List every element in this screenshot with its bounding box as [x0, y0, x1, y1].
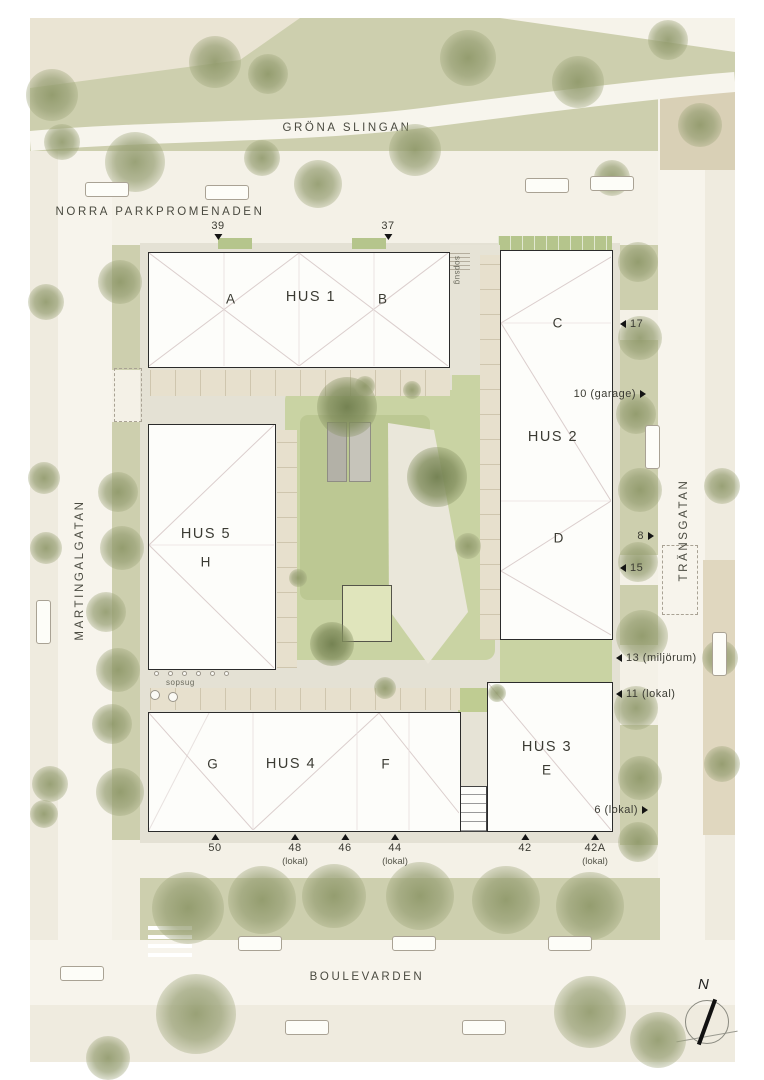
sopsug-inlet [210, 671, 215, 676]
terrace-strip-hus4 [150, 688, 460, 710]
entrance-label: 15 [630, 562, 643, 574]
street-label-norra-parkpromenaden: NORRA PARKPROMENADEN [56, 206, 265, 218]
tree [228, 866, 296, 934]
tree [648, 20, 688, 60]
entrance-arrow-icon [211, 834, 219, 840]
entrance-marker-south: 48(lokal) [282, 834, 308, 867]
entrance-arrow-icon [640, 390, 646, 398]
entrance-marker-east: 13 (miljörum) [616, 652, 697, 664]
entrance-label: 13 (miljörum) [626, 652, 697, 664]
tree [355, 376, 375, 396]
tree [294, 160, 342, 208]
car [712, 632, 727, 676]
car [238, 936, 282, 951]
tree [44, 124, 80, 160]
entrance-sublabel: (lokal) [282, 856, 308, 867]
tree [455, 533, 481, 559]
site-plan: A HUS 1 B C HUS 2 D HUS 5 H [0, 0, 764, 1080]
car [462, 1020, 506, 1035]
unit-label-a: A [226, 292, 236, 307]
entrance-marker-south: 44(lokal) [382, 834, 408, 867]
tree [98, 260, 142, 304]
frame-left [0, 0, 30, 1080]
entrance-arrow-icon [291, 834, 299, 840]
annotation-sopsug-passage: sopsug [453, 256, 462, 285]
entrance-marker-east: 15 [620, 562, 643, 574]
entrance-arrow-icon [620, 320, 626, 328]
tree [389, 124, 441, 176]
parking-dashed-west [114, 368, 142, 422]
tree [554, 976, 626, 1048]
tree [302, 864, 366, 928]
entrance-arrow-icon [214, 234, 222, 240]
entrance-marker-south: 50 [208, 834, 221, 854]
sopsug-inlet [196, 671, 201, 676]
tree [678, 103, 722, 147]
car [548, 936, 592, 951]
entrance-marker-south: 42A(lokal) [582, 834, 608, 867]
tree [704, 746, 740, 782]
car [205, 185, 249, 200]
tree [98, 472, 138, 512]
tree [96, 648, 140, 692]
frame-top [0, 0, 764, 18]
car [36, 600, 51, 644]
tree [374, 677, 396, 699]
street-label-grona-slingan: GRÖNA SLINGAN [282, 122, 411, 134]
sopsug-inlet [182, 671, 187, 676]
street-label-martingalgatan: MARTINGALGATAN [74, 499, 86, 640]
unit-label-g: G [207, 757, 219, 772]
entrance-label: 37 [381, 220, 394, 232]
entrance-marker-west: 8 [637, 530, 654, 542]
tree [618, 756, 662, 800]
tree [28, 284, 64, 320]
tree [152, 872, 224, 944]
car [525, 178, 569, 193]
entrance-arrow-icon [384, 234, 392, 240]
entrance-label: 48 [288, 842, 301, 854]
tree [30, 800, 58, 828]
building-hus4: G HUS 4 F [148, 712, 461, 832]
entrance-label: 11 (lokal) [626, 688, 675, 700]
tree [248, 54, 288, 94]
entrance-marker-south: 42 [518, 834, 531, 854]
entrance-marker-east: 17 [620, 318, 643, 330]
unit-label-f: F [381, 757, 390, 772]
tree [407, 447, 467, 507]
tree [32, 766, 68, 802]
tree [472, 866, 540, 934]
entrance-label: 10 (garage) [574, 388, 636, 400]
entrance-marker-west: 10 (garage) [574, 388, 646, 400]
tree [156, 974, 236, 1054]
unit-label-b: B [378, 292, 388, 307]
entrance-label: 50 [208, 842, 221, 854]
entrance-label: 46 [338, 842, 351, 854]
building-hus2: C HUS 2 D [500, 250, 613, 640]
entrance-label: 6 (lokal) [594, 804, 638, 816]
tree [100, 526, 144, 570]
tree [189, 36, 241, 88]
tree [96, 768, 144, 816]
tree [386, 862, 454, 930]
tree [618, 242, 658, 282]
entrance-label: 8 [637, 530, 644, 542]
entrance-arrow-icon [521, 834, 529, 840]
tree [30, 532, 62, 564]
tree [618, 822, 658, 862]
sopsug-inlet [154, 671, 159, 676]
sopsug-inlet-large [150, 690, 160, 700]
car [392, 936, 436, 951]
sopsug-inlet [168, 671, 173, 676]
entrance-arrow-icon [648, 532, 654, 540]
entrance-arrow-icon [642, 806, 648, 814]
building-hus1: A HUS 1 B [148, 252, 450, 368]
entrance-sublabel: (lokal) [382, 856, 408, 867]
tree [704, 468, 740, 504]
entrance-arrow-icon [620, 564, 626, 572]
entrance-arrow-icon [341, 834, 349, 840]
tree [488, 684, 506, 702]
building-label-hus5: HUS 5 [181, 526, 231, 542]
entrance-marker-top: 39 [211, 220, 224, 240]
sopsug-inlet-large [168, 692, 178, 702]
tree [552, 56, 604, 108]
entrance-label: 42A [584, 842, 605, 854]
tree [403, 381, 421, 399]
tree [618, 468, 662, 512]
entrance-label: 17 [630, 318, 643, 330]
annotation-sopsug: sopsug [166, 678, 195, 687]
tree [86, 592, 126, 632]
entrance-marker-south: 46 [338, 834, 351, 854]
building-label-hus2: HUS 2 [528, 429, 578, 445]
stair-structure [458, 786, 487, 832]
unit-label-c: C [553, 316, 564, 331]
building-hus5: HUS 5 H [148, 424, 276, 670]
north-label: N [698, 976, 709, 993]
sopsug-inlet [224, 671, 229, 676]
building-label-hus1: HUS 1 [286, 289, 336, 305]
entrance-arrow-icon [391, 834, 399, 840]
tree [26, 69, 78, 121]
entrance-arrow-icon [616, 690, 622, 698]
entrance-marker-west: 6 (lokal) [594, 804, 648, 816]
car [60, 966, 104, 981]
entrance-arrow-icon [616, 654, 622, 662]
street-label-boulevarden: BOULEVARDEN [310, 971, 425, 983]
entrance-arrow-icon [591, 834, 599, 840]
unit-label-h: H [201, 555, 212, 570]
tree [310, 622, 354, 666]
terrace-strip-hus5 [277, 430, 297, 668]
building-label-hus3: HUS 3 [522, 739, 572, 755]
frame-right [735, 0, 764, 1080]
car [645, 425, 660, 469]
entrance-label: 42 [518, 842, 531, 854]
tree [556, 872, 624, 940]
entrance-label: 44 [388, 842, 401, 854]
building-label-hus4: HUS 4 [266, 756, 316, 772]
car [285, 1020, 329, 1035]
tree [86, 1036, 130, 1080]
tree [630, 1012, 686, 1068]
terrace-strip-hus2 [480, 255, 500, 640]
entrance-label: 39 [211, 220, 224, 232]
tree [440, 30, 496, 86]
street-label-transgatan: TRÄNSGATAN [678, 479, 690, 582]
car [590, 176, 634, 191]
tree [289, 569, 307, 587]
unit-label-e: E [542, 763, 552, 778]
entrance-marker-east: 11 (lokal) [616, 688, 675, 700]
tree [28, 462, 60, 494]
entrance-marker-top: 37 [381, 220, 394, 240]
tree [92, 704, 132, 744]
unit-label-d: D [554, 531, 565, 546]
tree [244, 140, 280, 176]
entrance-sublabel: (lokal) [582, 856, 608, 867]
car [85, 182, 129, 197]
